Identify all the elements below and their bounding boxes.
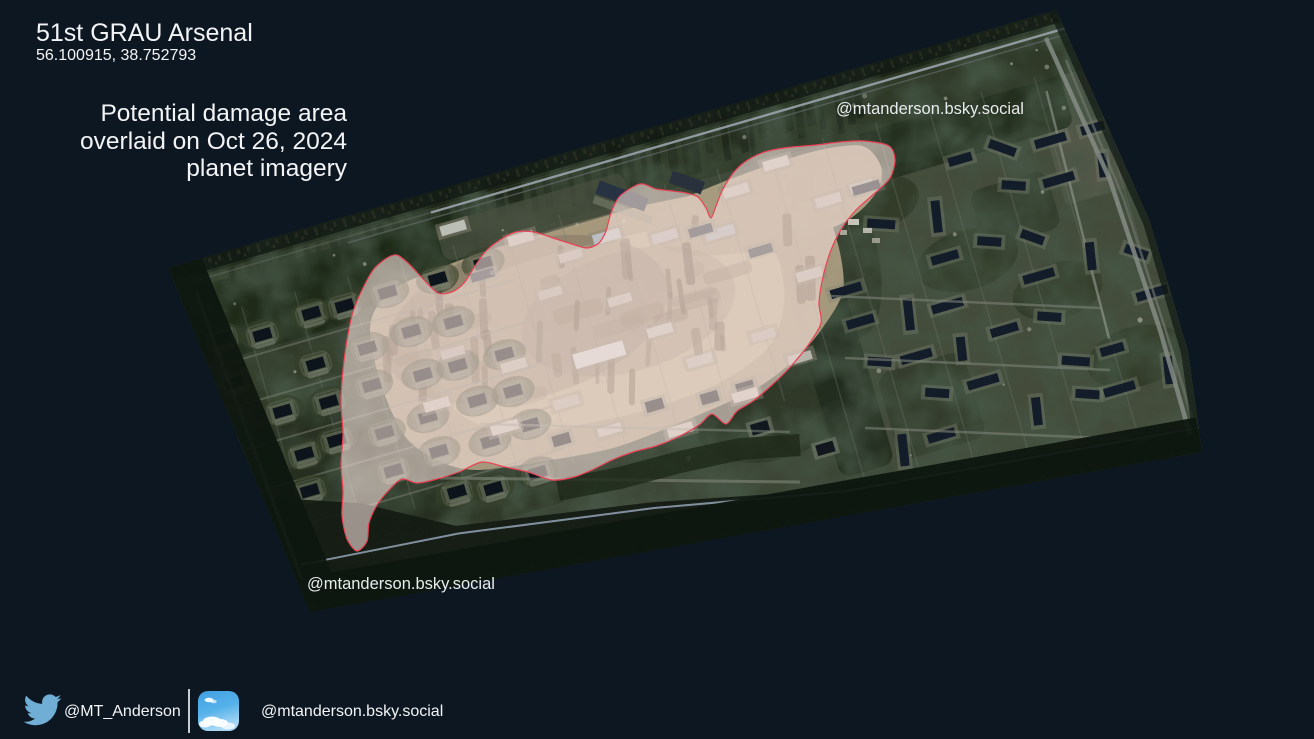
svg-text:@mtanderson.bsky.social: @mtanderson.bsky.social — [307, 575, 495, 593]
svg-text:@mtanderson.bsky.social: @mtanderson.bsky.social — [836, 100, 1024, 118]
